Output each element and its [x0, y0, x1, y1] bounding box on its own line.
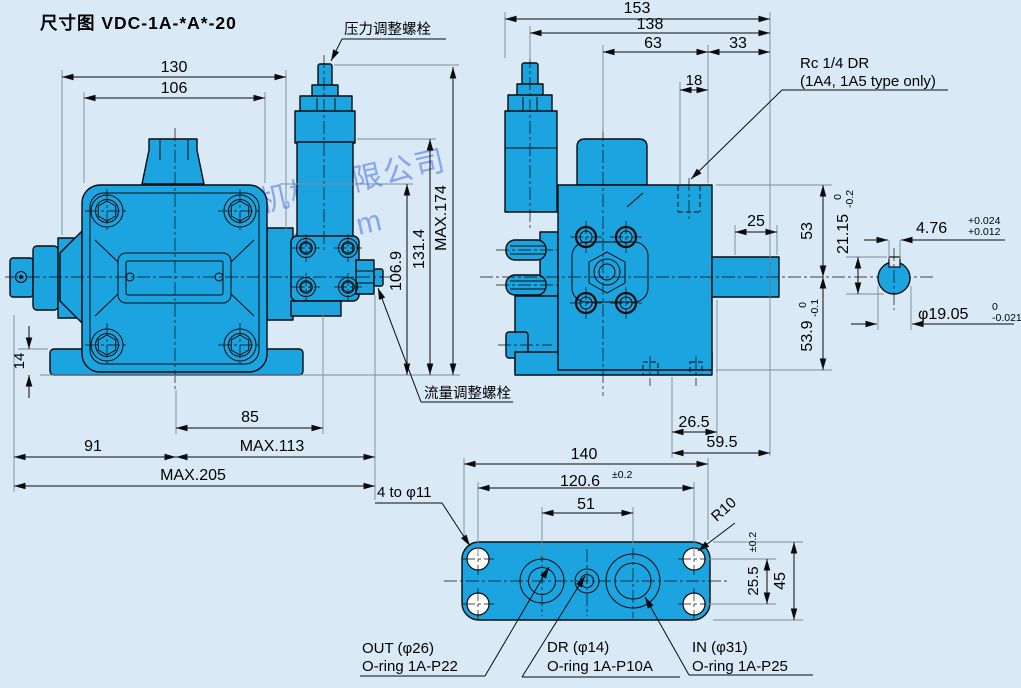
- dim-21-15: 21.15: [835, 214, 852, 254]
- page-title: 尺寸图 VDC-1A-*A*-20: [40, 13, 237, 33]
- shaft-end-cover: [33, 246, 58, 310]
- four-holes-label: 4 to φ11: [377, 484, 432, 501]
- dim-53: 53: [799, 222, 816, 240]
- dim-21-15-tol-upper: 0: [832, 194, 844, 200]
- dim-120-6: 120.6: [560, 473, 600, 490]
- valve-block-step: [291, 301, 341, 316]
- dim-max113: MAX.113: [240, 438, 305, 455]
- dim-138: 138: [637, 16, 664, 33]
- rc-dr-label-2: (1A4, 1A5 type only): [800, 73, 936, 90]
- bottom-view: [444, 542, 729, 620]
- flow-bolt-label: 流量调整螺栓: [424, 385, 511, 402]
- dim-18: 18: [686, 72, 703, 89]
- dim-63: 63: [644, 35, 662, 52]
- dim-140: 140: [571, 446, 598, 463]
- dim-53-9-tol-lower: -0.1: [809, 299, 821, 317]
- out-port-label: OUT (φ26): [362, 640, 434, 657]
- r10-label: R10: [708, 494, 740, 525]
- top-cap: [142, 139, 204, 184]
- drawing-canvas: 尺寸图 VDC-1A-*A*-20 压力调整螺栓 流量调整螺栓 130 106 …: [0, 0, 1021, 688]
- dim-4-76: 4.76: [916, 220, 947, 237]
- dim-21-15-tol-lower: -0.2: [844, 190, 856, 208]
- dim-59-5: 59.5: [706, 434, 737, 451]
- dim-120-6-tol: ±0.2: [612, 469, 633, 481]
- dim-53-9: 53.9: [799, 320, 816, 351]
- in-oring-label: O-ring 1A-P25: [692, 658, 788, 675]
- dim-25: 25: [747, 213, 765, 230]
- pump-body-front: [82, 185, 267, 372]
- dim-19-05-tol-lower: -0.021: [992, 312, 1021, 324]
- dim-106: 106: [161, 80, 188, 97]
- dimension-drawing-page: 上海台拓液压机械有限公司 http://www.tjyytw.com: [0, 0, 1021, 688]
- dim-max205: MAX.205: [160, 467, 226, 484]
- pressure-adjust-bolt-side: [505, 63, 557, 212]
- dim-130: 130: [161, 59, 188, 76]
- dim-91: 91: [84, 438, 102, 455]
- dim-25-5: 25.5: [745, 566, 762, 595]
- keyway: [889, 257, 900, 267]
- right-transition: [267, 228, 293, 320]
- pressure-adjust-bolt-front: [295, 64, 355, 240]
- dim-33: 33: [729, 35, 747, 52]
- dim-4-76-tol-lower: +0.012: [968, 226, 1001, 238]
- rc-dr-label-1: Rc 1/4 DR: [800, 55, 869, 72]
- dr-port-label: DR (φ14): [547, 639, 609, 656]
- pressure-bolt-label: 压力调整螺栓: [344, 21, 431, 38]
- dim-51: 51: [577, 496, 595, 513]
- dim-max174: MAX.174: [433, 185, 450, 251]
- dim-131-4: 131.4: [411, 229, 428, 269]
- dim-14: 14: [11, 353, 28, 370]
- dim-25-5-tol: ±0.2: [747, 532, 759, 553]
- in-port-label: IN (φ31): [692, 639, 748, 656]
- out-oring-label: O-ring 1A-P22: [362, 658, 458, 675]
- dim-26-5: 26.5: [678, 414, 709, 431]
- dim-45: 45: [772, 572, 789, 590]
- dim-153: 153: [624, 0, 651, 17]
- side-view: [480, 55, 935, 396]
- dim-53-9-tol-upper: 0: [797, 302, 809, 308]
- dr-oring-label: O-ring 1A-P10A: [547, 658, 653, 675]
- body-hump: [577, 139, 647, 185]
- dim-85: 85: [241, 409, 259, 426]
- dim-19-05: φ19.05: [918, 306, 969, 323]
- dim-106-9: 106.9: [388, 251, 405, 291]
- front-view: [5, 55, 395, 392]
